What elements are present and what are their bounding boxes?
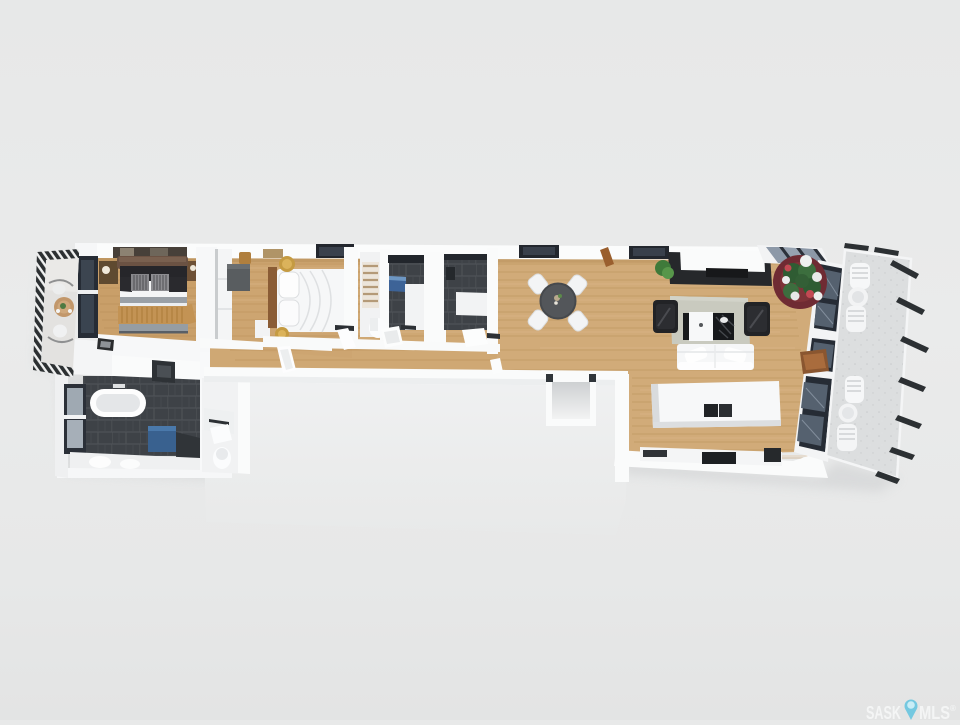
svg-text:®: ® <box>950 704 956 713</box>
svg-text:MLS: MLS <box>919 702 950 720</box>
svg-text:SASK: SASK <box>866 702 901 720</box>
